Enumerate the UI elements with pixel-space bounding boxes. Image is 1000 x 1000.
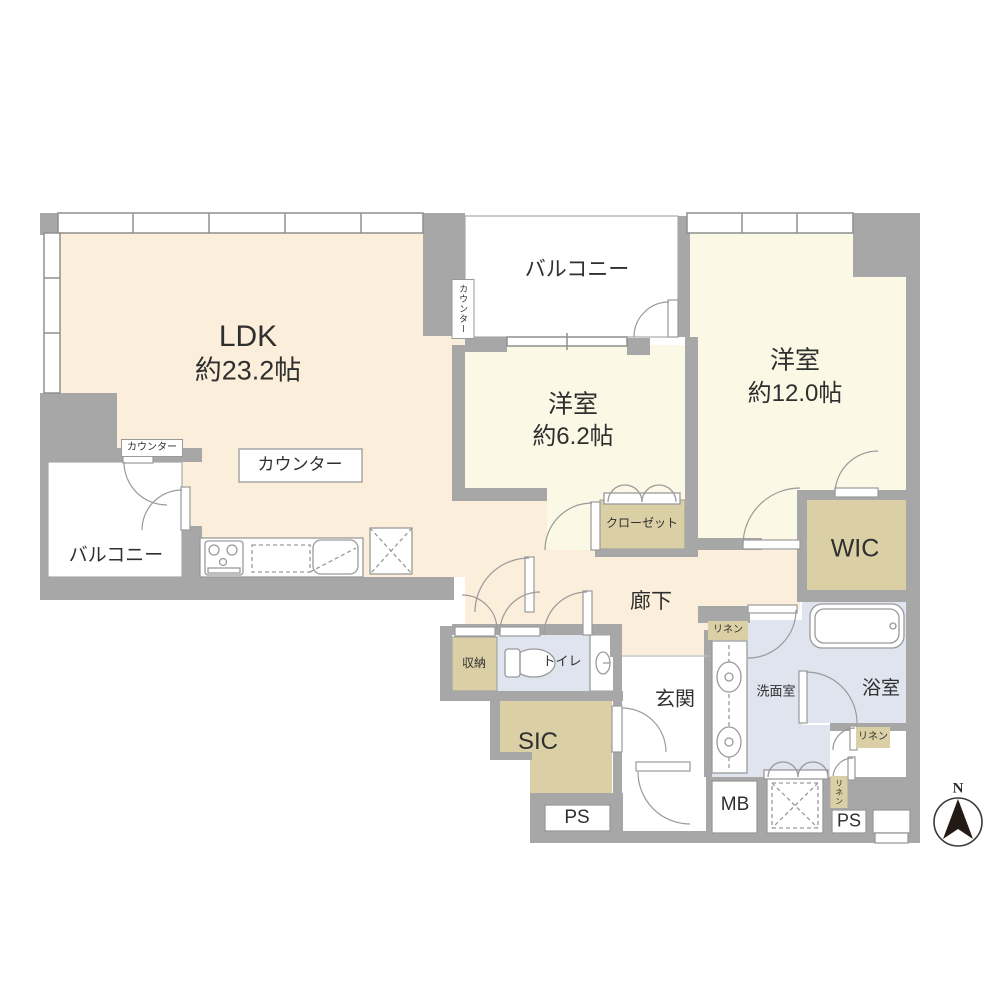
washroom-label: 洗面室	[756, 685, 795, 700]
closet-label: クローゼット	[606, 517, 678, 531]
room-fills	[48, 216, 908, 831]
counter-small-label: カウンター	[121, 439, 183, 457]
entry-alcove	[622, 762, 710, 831]
vanity-counter-icon	[712, 641, 747, 773]
meter-box-label: MB	[721, 794, 750, 816]
counter-box-label: カウンター	[258, 455, 343, 475]
ldk-top-window	[58, 213, 423, 233]
balcony-left-label: バルコニー	[69, 545, 164, 567]
bedroom1-size-label: 約6.2帖	[532, 423, 613, 451]
compass	[934, 798, 982, 846]
utility-box-outline	[873, 810, 910, 833]
linen-top-label: リネン	[713, 624, 743, 636]
storage-label: 収納	[462, 657, 486, 671]
utility-box-lower	[875, 833, 908, 843]
floorplan-canvas: LDK 約23.2帖 洋室 約6.2帖 洋室 約12.0帖 バルコニー バルコニ…	[0, 0, 1000, 1000]
bedroom1-name-label: 洋室	[548, 391, 598, 420]
refrigerator-space-icon	[370, 528, 412, 574]
ldk-size-label: 約23.2帖	[195, 355, 302, 386]
hallway-label: 廊下	[630, 590, 672, 614]
compass-north-label: N	[953, 780, 964, 797]
kitchen-counter	[200, 538, 363, 577]
compass-north-arrow-icon	[943, 799, 973, 839]
bedroom2-name-label: 洋室	[770, 347, 820, 376]
toilet-sink-icon	[596, 652, 610, 674]
entrance-label: 玄関	[655, 689, 695, 712]
floorplan-drawing	[0, 0, 1000, 1000]
balcony-top-label: バルコニー	[525, 258, 630, 282]
ldk-left-window	[44, 233, 60, 393]
bedroom2-window	[687, 213, 853, 233]
bathtub-icon	[810, 604, 904, 648]
wic-label: WIC	[831, 535, 880, 564]
counter-vertical-label: カウンター	[452, 279, 475, 339]
pipe-space-left-label: PS	[564, 807, 589, 829]
ldk-name-label: LDK	[219, 320, 277, 355]
toilet-label: トイレ	[542, 655, 581, 670]
linen-vertical-label: リネン	[831, 776, 848, 808]
bathroom-label: 浴室	[862, 678, 900, 700]
sic-label: SIC	[518, 728, 558, 756]
linen-bath-label: リネン	[858, 731, 888, 743]
shaft-icon	[767, 778, 823, 833]
bedroom2-size-label: 約12.0帖	[748, 380, 843, 408]
pipe-space-right-label: PS	[837, 811, 861, 832]
kitchen-sink-icon	[313, 540, 358, 574]
